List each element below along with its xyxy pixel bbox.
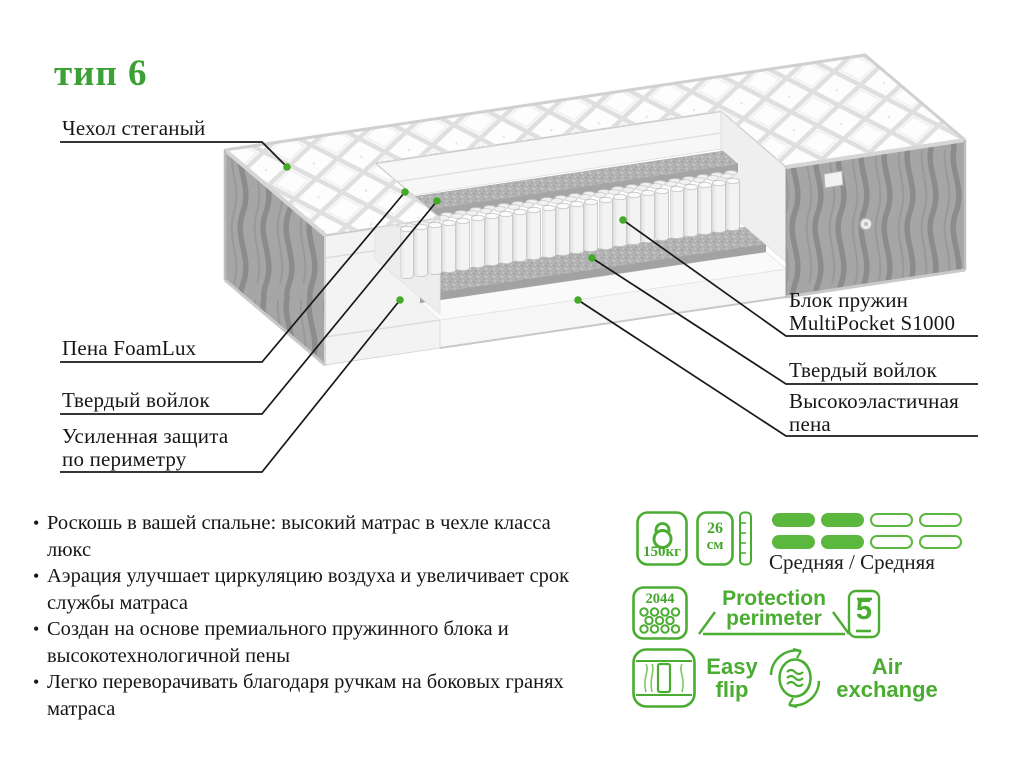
callout-label: Пена FoamLux	[62, 337, 196, 360]
callout-label: пена	[789, 413, 959, 436]
springs-count-value: 2044	[632, 591, 688, 608]
fabric-tag	[824, 171, 843, 188]
firmness-pill-empty	[870, 535, 913, 549]
firmness-pill-empty	[919, 513, 962, 527]
callout-quilted-cover: Чехол стеганый	[62, 117, 205, 140]
protection-label-line2: perimeter	[698, 607, 850, 631]
air-exchange-icon	[761, 643, 829, 713]
ruler-icon	[739, 511, 752, 566]
page-title: тип 6	[54, 52, 148, 95]
callout-elastic-foam: Высокоэластичная пена	[789, 390, 959, 436]
height-unit: см	[696, 537, 734, 554]
firmness-pill-empty	[919, 535, 962, 549]
right-side-fabric-panel	[786, 140, 965, 297]
callout-label: Твердый войлок	[62, 389, 210, 412]
max-weight-value: 150кг	[636, 544, 688, 561]
bullet-icon: •	[33, 669, 39, 696]
easy-flip-icon	[632, 648, 696, 708]
warranty-years-value: 5	[847, 594, 881, 627]
callout-spring-block: Блок пружин MultiPocket S1000	[789, 289, 955, 335]
firmness-pill-filled	[772, 513, 815, 527]
feature-item: •Роскошь в вашей спальне: высокий матрас…	[33, 510, 578, 563]
firmness-pill-filled	[821, 535, 864, 549]
feature-item: •Создан на основе премиального пружинног…	[33, 616, 578, 669]
callout-foamlux: Пена FoamLux	[62, 337, 196, 360]
callout-label: Твердый войлок	[789, 359, 937, 382]
easy-flip-label-line2: flip	[699, 677, 765, 703]
feature-text: Аэрация улучшает циркуляцию воздуха и ув…	[47, 565, 569, 614]
callout-hard-felt-right: Твердый войлок	[789, 359, 937, 382]
height-value: 26	[696, 520, 734, 538]
callout-label: Усиленная защита	[62, 425, 228, 448]
bullet-icon: •	[33, 510, 39, 537]
feature-text: Роскошь в вашей спальне: высокий матрас …	[47, 512, 551, 561]
feature-item: •Легко переворачивать благодаря ручкам н…	[33, 669, 578, 722]
features-list: •Роскошь в вашей спальне: высокий матрас…	[33, 510, 578, 722]
callout-label: Блок пружин	[789, 289, 955, 312]
firmness-pill-filled	[772, 535, 815, 549]
firmness-label: Средняя / Средняя	[769, 550, 935, 575]
callout-label: по периметру	[62, 448, 228, 471]
bullet-icon: •	[33, 563, 39, 590]
callout-label: MultiPocket S1000	[789, 312, 955, 335]
air-exchange-label-line2: exchange	[833, 677, 941, 703]
callout-hard-felt-left: Твердый войлок	[62, 389, 210, 412]
feature-text: Создан на основе премиального пружинного…	[47, 618, 509, 667]
infographic-page: тип 6 Чехол стеганый Пена FoamLux Тверды…	[0, 0, 1024, 768]
feature-item: •Аэрация улучшает циркуляцию воздуха и у…	[33, 563, 578, 616]
firmness-pill-empty	[870, 513, 913, 527]
callout-perimeter-protection: Усиленная защита по периметру	[62, 425, 228, 471]
feature-text: Легко переворачивать благодаря ручкам на…	[47, 671, 564, 720]
callout-label: Высокоэластичная	[789, 390, 959, 413]
callout-label: Чехол стеганый	[62, 117, 205, 140]
bullet-icon: •	[33, 616, 39, 643]
firmness-pill-filled	[821, 513, 864, 527]
